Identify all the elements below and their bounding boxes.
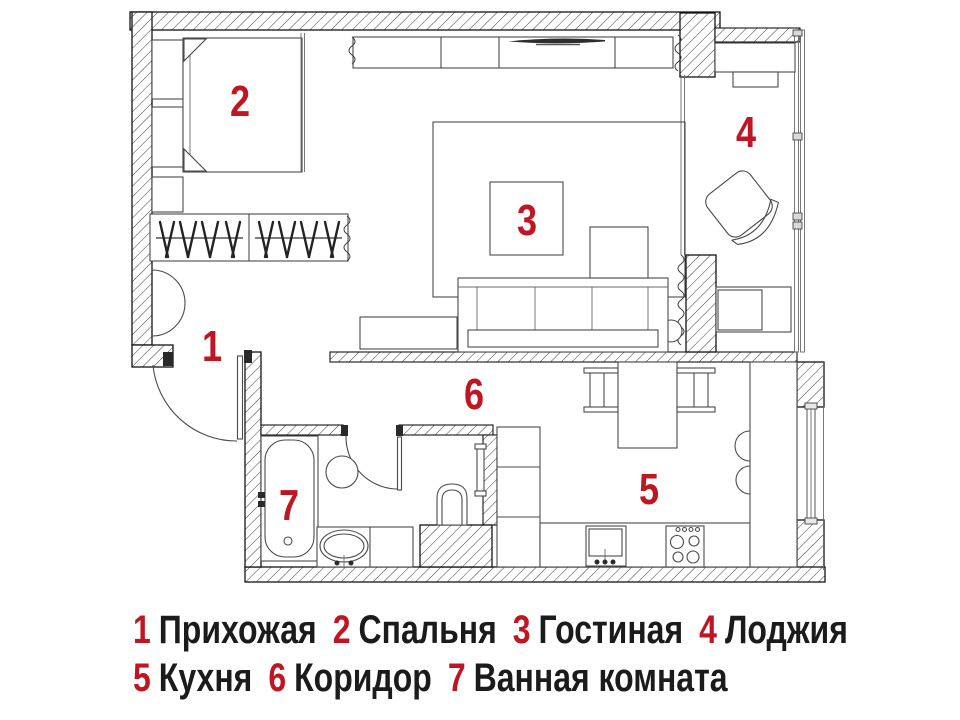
legend-number: 6 — [268, 656, 286, 700]
loggia-cabinet-icon — [715, 43, 795, 72]
armchair-icon — [701, 164, 788, 251]
room-label-1: 1 — [202, 322, 222, 371]
legend-label: Кухня — [159, 656, 253, 700]
loggia-stool-icon — [733, 72, 778, 87]
legend-label: Прихожая — [159, 608, 317, 652]
nightstand-icon — [152, 40, 183, 99]
chair-icon — [677, 368, 715, 412]
loggia-table-icon — [716, 287, 791, 332]
room-label-4: 4 — [736, 108, 757, 157]
dining-set — [584, 362, 715, 448]
towel-radiator-icon — [475, 444, 486, 496]
room-label-2: 2 — [230, 77, 250, 126]
bathroom-sink-icon — [317, 527, 413, 567]
stove-icon — [666, 526, 704, 567]
legend-number: 1 — [133, 608, 151, 652]
room-label-5: 5 — [639, 465, 659, 514]
legend-line-1: 1Прихожая2Спальня3Гостиная4Лоджия — [133, 606, 864, 654]
legend-number: 5 — [133, 656, 151, 700]
legend-label: Гостиная — [539, 608, 684, 652]
nightstand-icon — [152, 107, 183, 167]
legend-number: 2 — [333, 608, 351, 652]
legend-label: Коридор — [294, 656, 432, 700]
kitchen-sink-icon — [586, 526, 626, 566]
floor-plan: 1 2 3 4 5 6 7 — [0, 0, 960, 600]
legend-label: Лоджия — [725, 608, 848, 652]
coffee-table-icon — [360, 317, 457, 349]
living-room-furniture — [349, 37, 685, 352]
bedroom-furniture — [152, 33, 305, 212]
legend-number: 7 — [448, 656, 466, 700]
toilet-icon — [437, 484, 467, 525]
chair-icon — [584, 368, 618, 412]
room-label-6: 6 — [464, 370, 484, 419]
wardrobe-icon — [150, 214, 350, 261]
sofa-icon — [458, 278, 668, 352]
dining-table-icon — [618, 362, 677, 448]
entry-door — [153, 356, 243, 441]
wall-niche-arc — [152, 270, 185, 336]
legend-line-2: 5Кухня6Коридор7Ванная комната — [133, 654, 864, 702]
legend-label: Ванная комната — [474, 656, 728, 700]
stool-icon — [152, 177, 183, 212]
legend-label: Спальня — [359, 608, 497, 652]
legend: 1Прихожая2Спальня3Гостиная4Лоджия 5Кухня… — [133, 606, 864, 702]
legend-number: 3 — [513, 608, 531, 652]
room-label-7: 7 — [279, 481, 299, 530]
living-loggia-partition — [675, 35, 685, 345]
side-table-icon — [590, 227, 648, 278]
legend-number: 4 — [699, 608, 717, 652]
room-label-3: 3 — [517, 196, 537, 245]
loggia-glazing-window — [793, 30, 805, 352]
washing-machine-icon — [326, 456, 358, 488]
